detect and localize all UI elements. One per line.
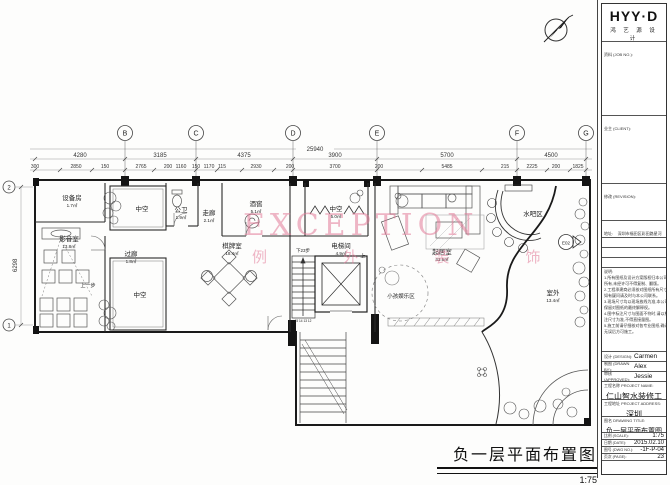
svg-text:1825: 1825	[572, 164, 583, 170]
fax-row: 传真 (Fax): 0755-82793085	[602, 248, 666, 258]
svg-text:1160: 1160	[176, 164, 187, 170]
svg-text:C: C	[193, 131, 198, 138]
company-logo: HYY·D 鸿 艺 源 设 计	[602, 4, 666, 42]
svg-text:200: 200	[164, 164, 173, 170]
drawing-title: 负一层平面布置图	[437, 441, 597, 469]
svg-text:215: 215	[501, 164, 510, 170]
toilet-icon	[172, 190, 182, 207]
designer-row: 设计 (DESIGN): Carmen	[602, 352, 666, 362]
tel-row: 电话 (Tel): 0755-82793086	[602, 238, 666, 248]
svg-text:小孩娱乐区: 小孩娱乐区	[387, 292, 415, 300]
date-row: 日期 (DATE): 2015.02.10	[602, 440, 666, 447]
media-wall	[388, 318, 484, 326]
svg-text:室外: 室外	[547, 288, 561, 297]
svg-text:2225: 2225	[526, 164, 537, 170]
page-label: 页次 (PAGE):	[604, 455, 627, 460]
approver-value: Jessie	[634, 373, 652, 380]
svg-text:1: 1	[7, 324, 11, 330]
svg-text:150: 150	[101, 164, 110, 170]
section-job: 资料 (JOB NO.):	[602, 42, 666, 116]
number-label: 图号 (DWG NO.):	[604, 448, 633, 453]
kids-area	[372, 265, 428, 321]
svg-text:酒窖: 酒窖	[250, 199, 264, 208]
svg-text:设备房: 设备房	[62, 193, 82, 202]
dim-overall: 25940	[307, 147, 324, 153]
svg-text:13.4㎡: 13.4㎡	[546, 297, 560, 303]
svg-text:水吧区: 水吧区	[523, 209, 543, 218]
svg-text:中空: 中空	[136, 204, 150, 213]
svg-text:棋牌室: 棋牌室	[222, 241, 242, 250]
outdoor-arcs	[533, 370, 588, 425]
grid-bubbles-left: 2 1 6298	[3, 181, 33, 331]
project-address-value: 深圳	[604, 409, 664, 417]
designer-label: 设计 (DESIGN):	[604, 354, 634, 360]
date-value: 2015.02.10	[634, 440, 664, 446]
svg-text:2850: 2850	[70, 164, 81, 170]
logo-subtitle: 鸿 艺 源 设 计	[604, 26, 664, 42]
number-row: 图号 (DWG NO.): -1F-P-04	[602, 447, 666, 454]
svg-text:公卫: 公卫	[175, 206, 189, 214]
project-address-label: 工程地址 PROJECT ADDRESS:	[604, 401, 664, 407]
project-name-value: 仁山智水装修工程	[604, 391, 664, 400]
drawing-title-block: 负一层平面布置图 1:75	[437, 441, 597, 485]
titleblock-separator	[597, 0, 598, 478]
svg-text:200: 200	[375, 164, 384, 170]
svg-text:影音室: 影音室	[59, 234, 79, 243]
svg-text:F: F	[515, 131, 519, 138]
approver-label: 审核 (APPROVED):	[604, 372, 634, 382]
svg-text:走廊: 走廊	[203, 208, 217, 217]
scale-label: 比例 (SCALE):	[604, 434, 629, 439]
drawing-scale: 1:75	[437, 475, 597, 485]
section-revision: 修改 (REVISION):	[602, 184, 666, 221]
svg-text:3900: 3900	[328, 153, 342, 159]
svg-text:中空: 中空	[134, 290, 148, 299]
svg-text:2930: 2930	[250, 164, 261, 170]
revision-label: 修改 (REVISION):	[604, 194, 636, 199]
logo-text: HYY·D	[604, 8, 664, 24]
drawing-title-label: 图名 DRAWING TITLE:	[604, 418, 664, 424]
address-label: 地址:	[604, 231, 613, 236]
svg-text:1.8㎡: 1.8㎡	[126, 258, 137, 264]
watermark-text-cn: 例 外 装 饰	[252, 246, 577, 267]
svg-text:B: B	[123, 131, 128, 138]
title-underline	[437, 471, 597, 474]
external-stair	[300, 332, 347, 423]
section-client: 业主 (CLIENT):	[602, 116, 666, 184]
project-name-label: 工程名称 PROJECT NAME:	[604, 383, 664, 389]
titleblock-filler	[602, 461, 666, 474]
svg-text:G: G	[583, 131, 588, 138]
drafter-row: 制图 (DRAWN BY): Alex	[602, 362, 666, 372]
dim-row2: 300 2850 150 2765 200 1160 150 1170 115 …	[31, 164, 584, 170]
svg-text:300: 300	[31, 164, 40, 170]
dim-left-overall: 6298	[13, 258, 19, 272]
svg-text:5700: 5700	[440, 153, 454, 159]
svg-text:3185: 3185	[153, 153, 167, 159]
approver-row: 审核 (APPROVED): Jessie	[602, 372, 666, 382]
svg-text:1.9㎡: 1.9㎡	[176, 214, 187, 220]
svg-text:1.7㎡: 1.7㎡	[67, 202, 78, 208]
title-block: HYY·D 鸿 艺 源 设 计 资料 (JOB NO.): 业主 (CLIENT…	[601, 3, 667, 475]
mail-row: 邮箱 (Mail): www.hyydesign.com	[602, 258, 666, 268]
drawing-title-section: 图名 DRAWING TITLE: 负一层平面布置图	[602, 417, 666, 433]
svg-text:E02: E02	[562, 241, 571, 246]
svg-text:13.8㎡: 13.8㎡	[62, 243, 76, 249]
page-value: 23	[657, 454, 664, 460]
svg-text:18.4㎡: 18.4㎡	[225, 250, 239, 256]
svg-text:1170: 1170	[204, 164, 215, 170]
notes-section: 说明: 1.所有图纸及设计方案版权归本公司 所有,未经许可不得复制、翻版。 2.…	[602, 268, 666, 352]
date-label: 日期 (DATE):	[604, 441, 626, 446]
svg-text:115: 115	[218, 164, 226, 170]
drawing-title-value: 负一层平面布置图	[604, 426, 664, 433]
svg-text:4500: 4500	[544, 153, 558, 159]
svg-text:2: 2	[7, 186, 11, 192]
project-address-section: 工程地址 PROJECT ADDRESS: 深圳	[602, 400, 666, 417]
job-label: 资料 (JOB NO.):	[604, 52, 633, 57]
dim-row1: 4280 3185 4375 3900 5700 4500	[73, 153, 558, 159]
address-row: 地址: 深圳市福田区彩田路星河世纪大厦23楼	[602, 221, 666, 238]
svg-text:D: D	[290, 131, 295, 138]
bar-counter	[487, 185, 542, 253]
drafter-value: Alex	[634, 363, 647, 370]
watermark-text: EXCEPTION	[243, 208, 478, 243]
scale-value: 1:75	[652, 433, 664, 439]
designer-value: Carmen	[634, 353, 657, 360]
north-arrow-icon	[544, 15, 573, 42]
page-row: 页次 (PAGE): 23	[602, 454, 666, 461]
svg-text:5485: 5485	[441, 164, 452, 170]
drawing-sheet: 25940 4280 3185 4375 3900 5700 4500 300 …	[0, 0, 670, 478]
svg-text:2765: 2765	[135, 164, 146, 170]
games-room-furniture	[201, 250, 257, 306]
svg-text:15 14 13 12: 15 14 13 12	[295, 319, 312, 323]
address-value: 深圳市福田区彩田路星河世纪大厦23楼	[604, 231, 662, 238]
svg-text:4280: 4280	[73, 153, 87, 159]
svg-text:上一步: 上一步	[80, 282, 95, 289]
project-name-section: 工程名称 PROJECT NAME: 仁山智水装修工程	[602, 382, 666, 400]
note-line: 无误后方可施工。	[604, 329, 664, 335]
drafter-label: 制图 (DRAWN BY):	[604, 362, 634, 372]
grid-bubbles-top: B C D E F G	[118, 126, 594, 183]
svg-text:4375: 4375	[237, 153, 251, 159]
number-value: -1F-P-04	[640, 447, 664, 453]
scale-row: 比例 (SCALE): 1:75	[602, 433, 666, 440]
svg-text:过廊: 过廊	[125, 249, 139, 258]
svg-text:E: E	[375, 131, 380, 138]
client-label: 业主 (CLIENT):	[604, 126, 631, 131]
svg-text:2.1㎡: 2.1㎡	[204, 217, 215, 223]
svg-text:3700: 3700	[329, 164, 340, 170]
svg-text:200: 200	[552, 164, 561, 170]
